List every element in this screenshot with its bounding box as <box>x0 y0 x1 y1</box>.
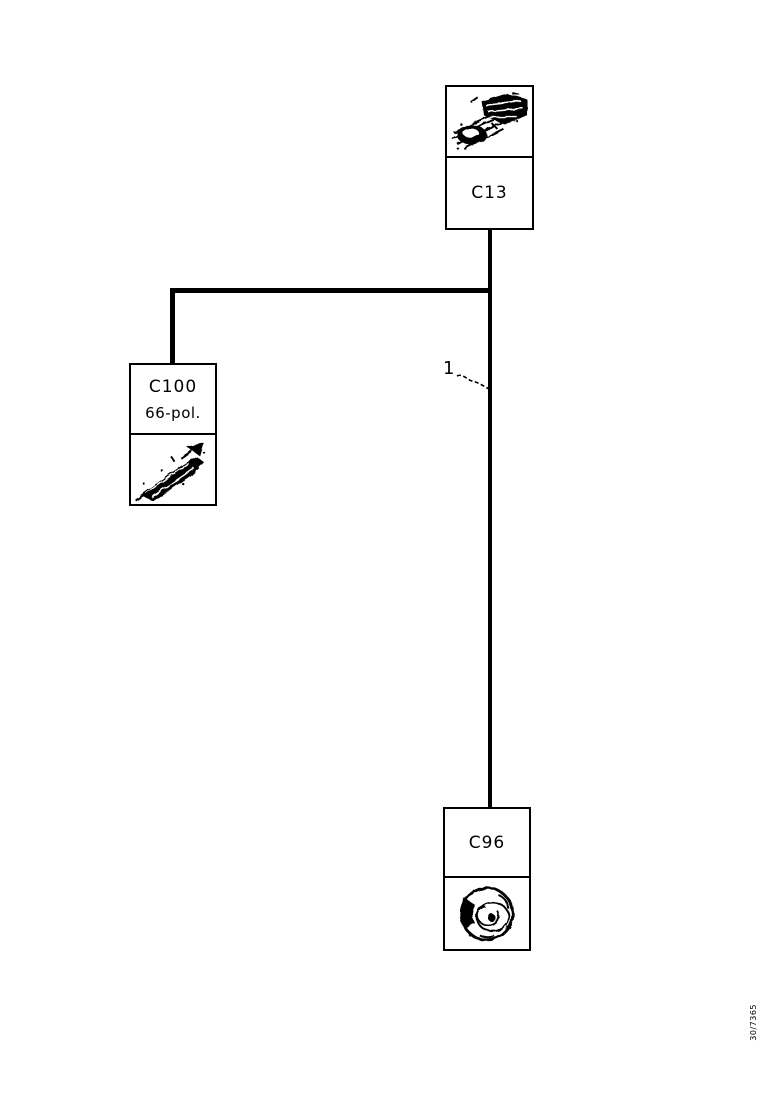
round-connector-icon <box>445 879 529 949</box>
connector-node-c13: C13 <box>445 85 534 230</box>
wire-segment-vertical-branch <box>170 288 175 364</box>
connector-label-c96: C96 <box>469 833 506 853</box>
connector-node-c96: C96 <box>443 807 531 951</box>
harness-connector-icon <box>448 89 531 155</box>
drawing-number: 30/7365 <box>749 1004 758 1041</box>
connector-label-c13: C13 <box>471 183 508 203</box>
connector-image-c96 <box>445 878 529 949</box>
connector-image-c100 <box>131 435 215 504</box>
wire-segment-vertical-main <box>488 228 492 808</box>
connector-image-c13 <box>447 87 532 158</box>
wire-number-label: 1 <box>443 358 454 379</box>
wiring-diagram-canvas: 1 C13 <box>0 0 778 1100</box>
connector-node-c100: C100 66-pol. <box>129 363 217 506</box>
connector-pincount-c100: 66-pol. <box>145 404 201 422</box>
wire-segment-horizontal-branch <box>170 288 492 293</box>
connector-label-c100: C100 <box>149 377 197 397</box>
leader-line <box>455 371 491 393</box>
harness-connector-icon <box>132 437 214 503</box>
